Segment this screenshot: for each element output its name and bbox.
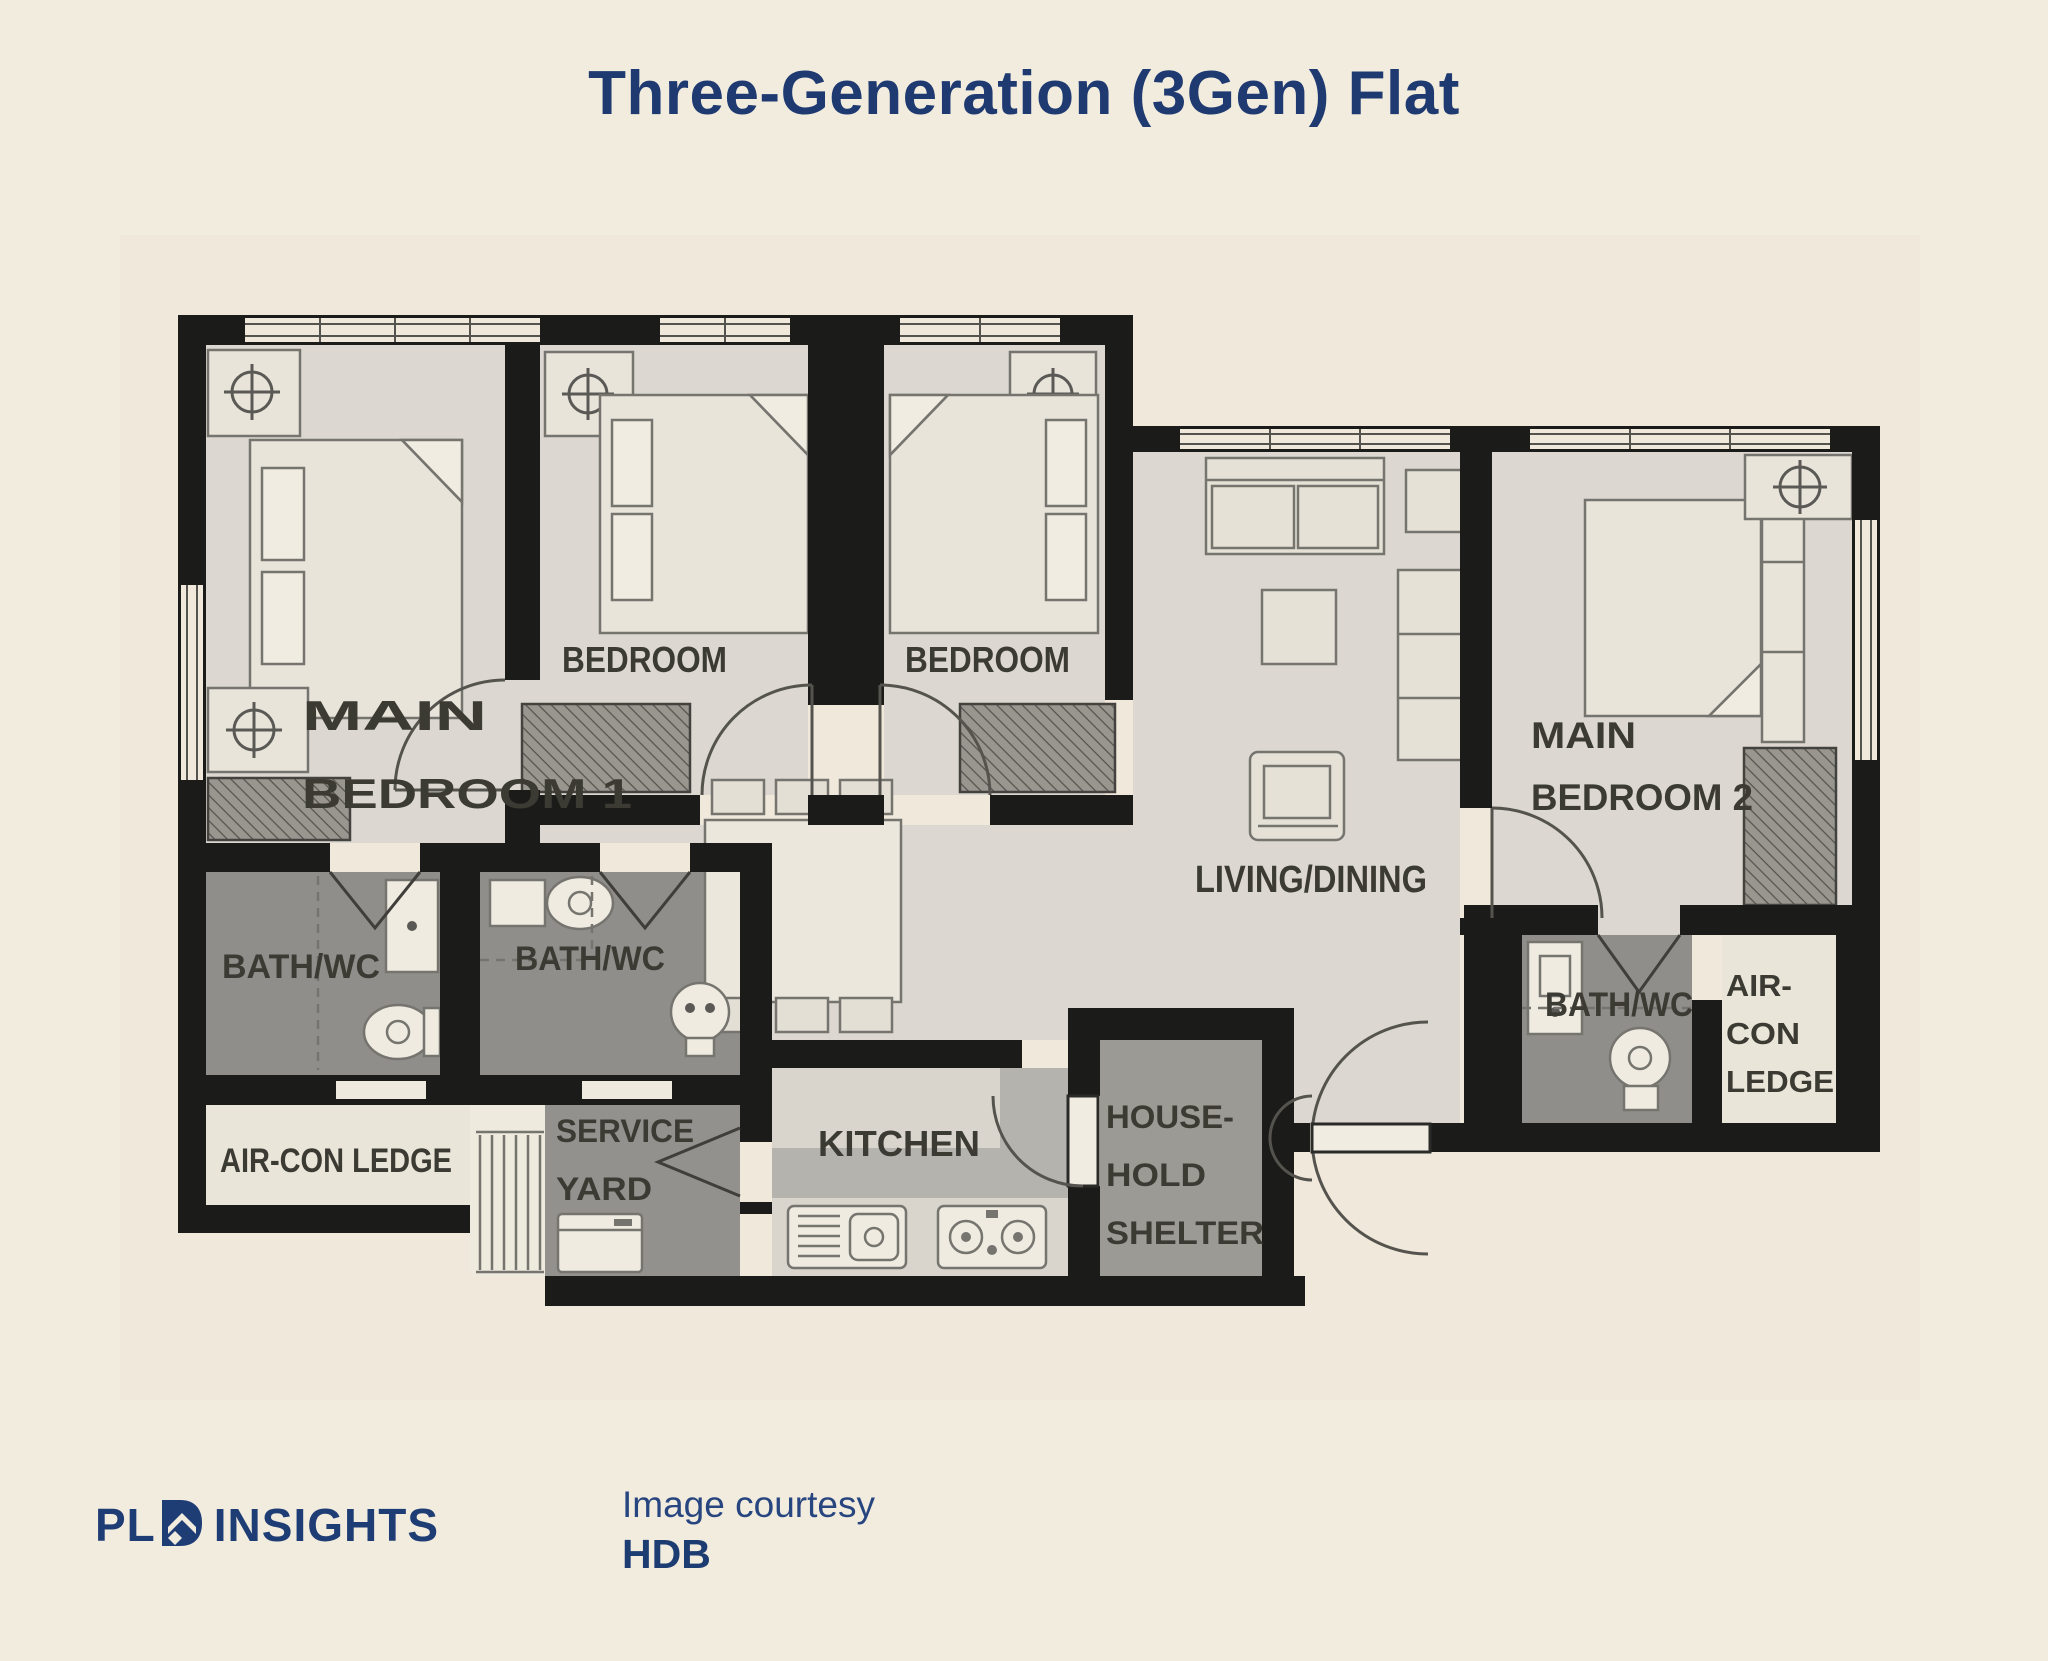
coffee-table	[1262, 590, 1336, 664]
stove-icon	[938, 1206, 1046, 1268]
label-bedroom-right: BEDROOM	[905, 639, 1070, 680]
tv-console	[1398, 570, 1462, 760]
fan-coil-unit-icon	[208, 350, 300, 436]
fan-coil-unit-icon	[1745, 455, 1852, 519]
bed-bedroom-right	[890, 395, 1098, 633]
washing-machine-icon	[558, 1214, 642, 1272]
label-main-bedroom-2-line2: BEDROOM 2	[1531, 777, 1753, 818]
label-main-bedroom-1-line1: MAIN	[302, 692, 487, 739]
label-living-dining: LIVING/DINING	[1195, 859, 1427, 901]
window	[660, 318, 790, 342]
bed-main-1	[250, 440, 462, 718]
image-credit: Image courtesy HDB	[622, 1482, 875, 1582]
label-aircon-ledge-left: AIR-CON LEDGE	[220, 1142, 452, 1180]
label-bedroom-left: BEDROOM	[562, 639, 727, 680]
window	[900, 318, 1060, 342]
bed-bedroom-left	[600, 395, 808, 633]
window	[245, 318, 540, 342]
label-aircon-ledge-right-line3: LEDGE	[1726, 1064, 1834, 1099]
side-table	[1406, 470, 1462, 532]
floor-plan: MAIN BEDROOM 1 BEDROOM BEDROOM MAIN BEDR…	[0, 0, 2048, 1661]
label-bath-wc-2: BATH/WC	[515, 940, 665, 978]
wardrobe-main-2	[1744, 748, 1836, 905]
label-household-shelter-line2: HOLD	[1106, 1157, 1206, 1193]
logo-text-insights: INSIGHTS	[214, 1502, 439, 1548]
credit-source-text: HDB	[622, 1528, 875, 1581]
sofa	[1206, 458, 1384, 554]
label-service-yard-line2: YARD	[556, 1171, 652, 1207]
credit-courtesy-text: Image courtesy	[622, 1482, 875, 1528]
window	[1855, 520, 1877, 760]
label-bath-wc-3: BATH/WC	[1545, 986, 1693, 1024]
label-household-shelter-line1: HOUSE-	[1106, 1099, 1234, 1135]
label-main-bedroom-2-line1: MAIN	[1531, 715, 1636, 756]
label-main-bedroom-1-line2: BEDROOM 1	[302, 770, 632, 817]
vent-slit	[582, 1081, 672, 1099]
label-service-yard-line1: SERVICE	[556, 1113, 694, 1149]
fan-coil-unit-icon	[208, 688, 308, 772]
vent-slit	[336, 1081, 426, 1099]
label-aircon-ledge-right-line2: CON	[1726, 1016, 1800, 1051]
window	[181, 585, 203, 780]
logo-text-pl: PL	[95, 1502, 156, 1548]
wardrobe-bedroom-right	[960, 704, 1115, 792]
window	[1530, 429, 1830, 449]
kitchen-sink-icon	[788, 1206, 906, 1268]
armchair	[1250, 752, 1344, 840]
window	[1180, 429, 1450, 449]
label-kitchen: KITCHEN	[818, 1123, 980, 1164]
label-household-shelter-line3: SHELTER	[1106, 1215, 1264, 1251]
plb-insights-logo: PL INSIGHTS	[95, 1500, 439, 1550]
plb-logo-b-mark-icon	[162, 1500, 202, 1546]
label-bath-wc-1: BATH/WC	[222, 948, 380, 986]
label-aircon-ledge-right-line1: AIR-	[1726, 968, 1792, 1003]
